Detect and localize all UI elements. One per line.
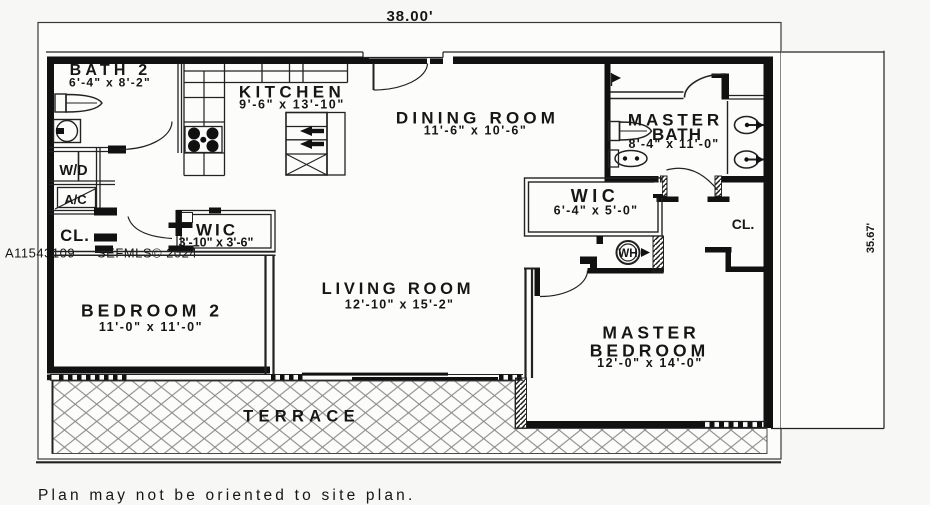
svg-text:MASTER: MASTER (602, 323, 699, 343)
svg-text:A/C: A/C (64, 192, 87, 207)
svg-text:6'-4" x 8'-2": 6'-4" x 8'-2" (69, 76, 151, 90)
svg-text:6'-4" x 5'-0": 6'-4" x 5'-0" (554, 204, 639, 218)
svg-text:Plan may not be oriented to si: Plan may not be oriented to site plan. (38, 487, 416, 504)
svg-text:CL.: CL. (60, 227, 90, 245)
svg-text:WH: WH (618, 248, 637, 260)
svg-text:W/D: W/D (59, 163, 87, 179)
svg-text:35.67': 35.67' (865, 223, 877, 254)
svg-text:LIVING ROOM: LIVING ROOM (322, 280, 475, 298)
svg-text:38.00': 38.00' (386, 8, 433, 25)
svg-text:TERRACE: TERRACE (243, 408, 360, 426)
svg-text:11'-0" x 11'-0": 11'-0" x 11'-0" (99, 320, 203, 334)
svg-text:9'-6" x 13'-10": 9'-6" x 13'-10" (239, 98, 345, 112)
svg-text:8'-4" x 11'-0": 8'-4" x 11'-0" (629, 137, 720, 151)
svg-text:12'-0" x 14'-0": 12'-0" x 14'-0" (597, 356, 703, 370)
svg-text:A11543109: A11543109 (5, 246, 75, 261)
svg-text:11'-6" x 10'-6": 11'-6" x 10'-6" (424, 124, 528, 138)
svg-text:12'-10" x 15'-2": 12'-10" x 15'-2" (345, 298, 454, 312)
svg-text:BEDROOM 2: BEDROOM 2 (81, 301, 223, 321)
svg-text:CL.: CL. (732, 216, 755, 232)
svg-text:3'-10" x 3'-6": 3'-10" x 3'-6" (179, 236, 254, 250)
